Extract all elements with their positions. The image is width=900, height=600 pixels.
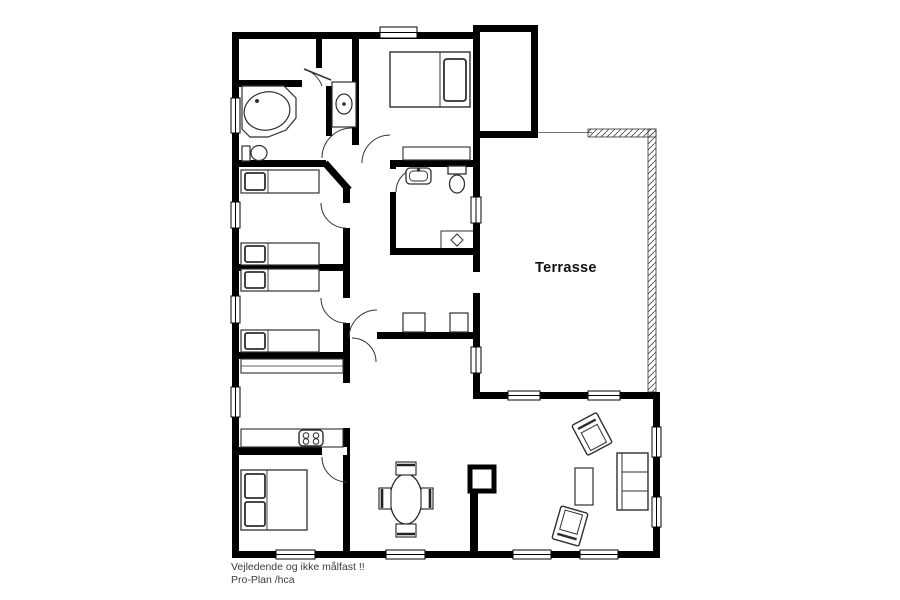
single-bed-icon — [241, 269, 319, 291]
door-swing-arc — [352, 338, 376, 362]
wall-chamfer — [325, 163, 349, 190]
window — [508, 391, 540, 400]
window — [231, 387, 240, 417]
floor-plan-page: Terrasse — [0, 0, 900, 600]
sofa-icon — [617, 453, 648, 510]
sink-drain — [343, 103, 345, 105]
bedrooms-left — [241, 170, 319, 352]
toilet-tank — [242, 146, 250, 161]
wardrobe-cabinet — [450, 313, 468, 332]
bedroom-bottom-left — [241, 470, 307, 530]
dining-chair — [396, 462, 416, 475]
fireplace-icon — [470, 467, 494, 491]
door-swing-arc — [362, 135, 390, 163]
armchair-icon — [572, 412, 613, 455]
window — [652, 427, 661, 457]
dining-table-icon — [390, 474, 422, 524]
kitchen-counter — [241, 429, 343, 447]
armchair-icon — [552, 506, 588, 546]
bed-pillow — [245, 502, 265, 526]
window — [580, 550, 618, 559]
dining-chair — [421, 488, 433, 509]
kitchen — [241, 359, 343, 447]
footer-credit: Pro-Plan /hca — [231, 574, 295, 586]
terrace-railing-right — [648, 129, 656, 392]
toilet-tank — [448, 166, 466, 174]
wall — [239, 352, 347, 359]
window — [276, 550, 315, 559]
terrace-door-opening — [472, 272, 481, 293]
terrace-area: Terrasse — [535, 129, 656, 392]
bed-pillow — [444, 59, 466, 101]
wall — [473, 131, 538, 138]
wall — [326, 86, 332, 136]
window — [380, 27, 417, 38]
bed-pillow — [245, 474, 265, 498]
window — [386, 550, 425, 559]
wall — [343, 455, 350, 551]
window — [231, 202, 240, 228]
washbasin-tap — [417, 169, 419, 171]
wall — [390, 248, 473, 255]
single-bed-icon — [241, 243, 319, 265]
coffee-table-icon — [575, 468, 593, 505]
dining-set — [379, 462, 433, 537]
bathroom-2 — [406, 166, 473, 248]
window — [513, 550, 551, 559]
bathroom-1 — [241, 86, 296, 161]
door-swing-arc — [349, 310, 377, 338]
door-opening — [322, 447, 347, 455]
window — [471, 197, 481, 223]
toilet-icon — [251, 146, 267, 161]
master-bedroom — [390, 52, 470, 160]
door-swings — [304, 69, 420, 482]
window — [231, 98, 240, 133]
terrace-railing-top — [588, 129, 656, 137]
dresser — [403, 147, 470, 160]
window — [588, 391, 620, 400]
wall — [316, 39, 322, 68]
shower-drain-icon — [451, 234, 463, 246]
door-opening — [342, 203, 351, 228]
floor-plan-drawing: Terrasse — [0, 0, 900, 600]
round-sink-fixture — [332, 82, 356, 127]
hall-cabinets — [403, 313, 468, 332]
toilet-icon — [450, 175, 465, 193]
wall — [232, 32, 480, 39]
dining-chair — [396, 524, 416, 537]
window — [471, 347, 481, 373]
wall — [531, 25, 538, 138]
bathtub-drain — [256, 100, 259, 103]
wall — [343, 352, 350, 383]
dining-chair — [379, 488, 391, 509]
cooktop-icon — [299, 430, 323, 446]
terrace-label: Terrasse — [535, 260, 597, 276]
wall — [653, 392, 660, 558]
wall — [377, 332, 480, 339]
single-bed-icon — [241, 170, 319, 193]
wardrobe-cabinet — [403, 313, 425, 332]
door-opening — [342, 298, 351, 323]
single-bed-icon — [241, 330, 319, 352]
footer-note: Vejledende og ikke målfast !! — [231, 561, 365, 573]
window — [652, 497, 661, 527]
living-room — [552, 412, 648, 546]
wall — [473, 392, 660, 399]
wall — [473, 25, 538, 32]
washbasin-bowl — [410, 171, 428, 181]
window — [231, 296, 240, 323]
wall — [239, 160, 326, 167]
